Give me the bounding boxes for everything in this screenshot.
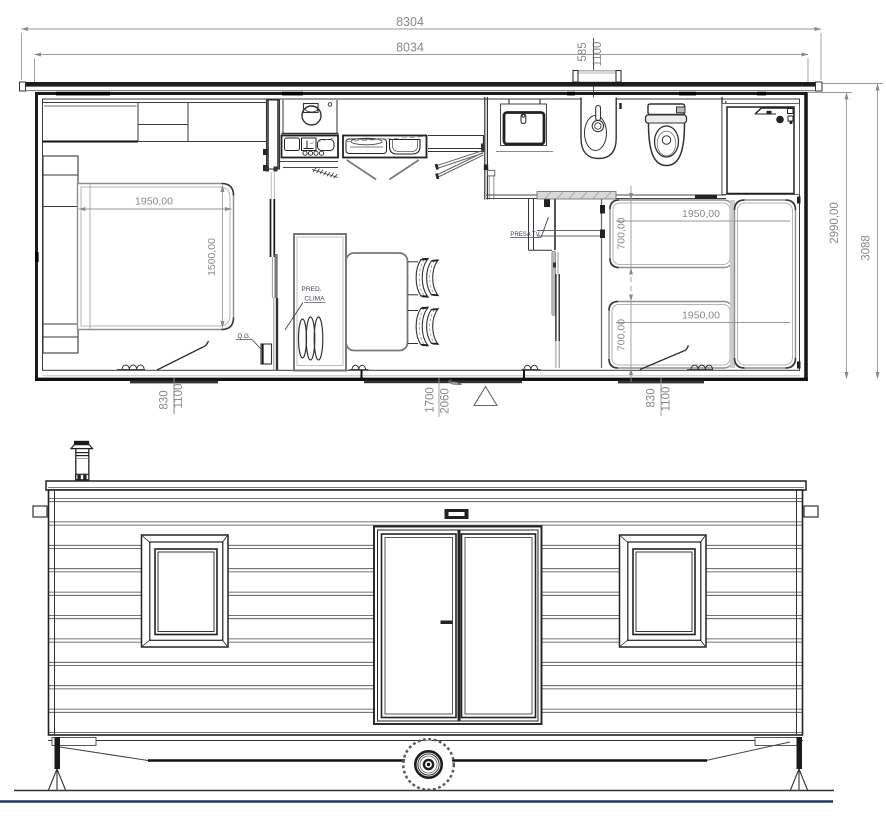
- svg-text:CLIMA: CLIMA: [304, 296, 325, 303]
- svg-text:1950,00: 1950,00: [135, 196, 173, 208]
- svg-text:Q.G.: Q.G.: [237, 333, 250, 340]
- svg-text:1100: 1100: [173, 384, 185, 409]
- svg-text:700,00: 700,00: [616, 319, 628, 351]
- svg-text:8034: 8034: [396, 41, 424, 55]
- svg-text:1100: 1100: [661, 387, 673, 412]
- svg-text:1950,00: 1950,00: [682, 208, 720, 220]
- svg-text:PRED.: PRED.: [301, 286, 321, 293]
- svg-text:8304: 8304: [396, 15, 424, 29]
- svg-text:700,00: 700,00: [616, 217, 628, 249]
- svg-text:3088: 3088: [861, 235, 873, 261]
- svg-text:830: 830: [646, 388, 658, 407]
- svg-text:585: 585: [577, 42, 589, 61]
- svg-text:PRESA TV: PRESA TV: [510, 232, 539, 238]
- svg-text:830: 830: [159, 390, 171, 409]
- svg-text:1700: 1700: [425, 387, 437, 413]
- svg-text:2060: 2060: [440, 388, 452, 414]
- svg-text:2990,00: 2990,00: [829, 202, 841, 244]
- svg-text:1500,00: 1500,00: [206, 238, 218, 276]
- svg-text:1950,00: 1950,00: [682, 310, 720, 322]
